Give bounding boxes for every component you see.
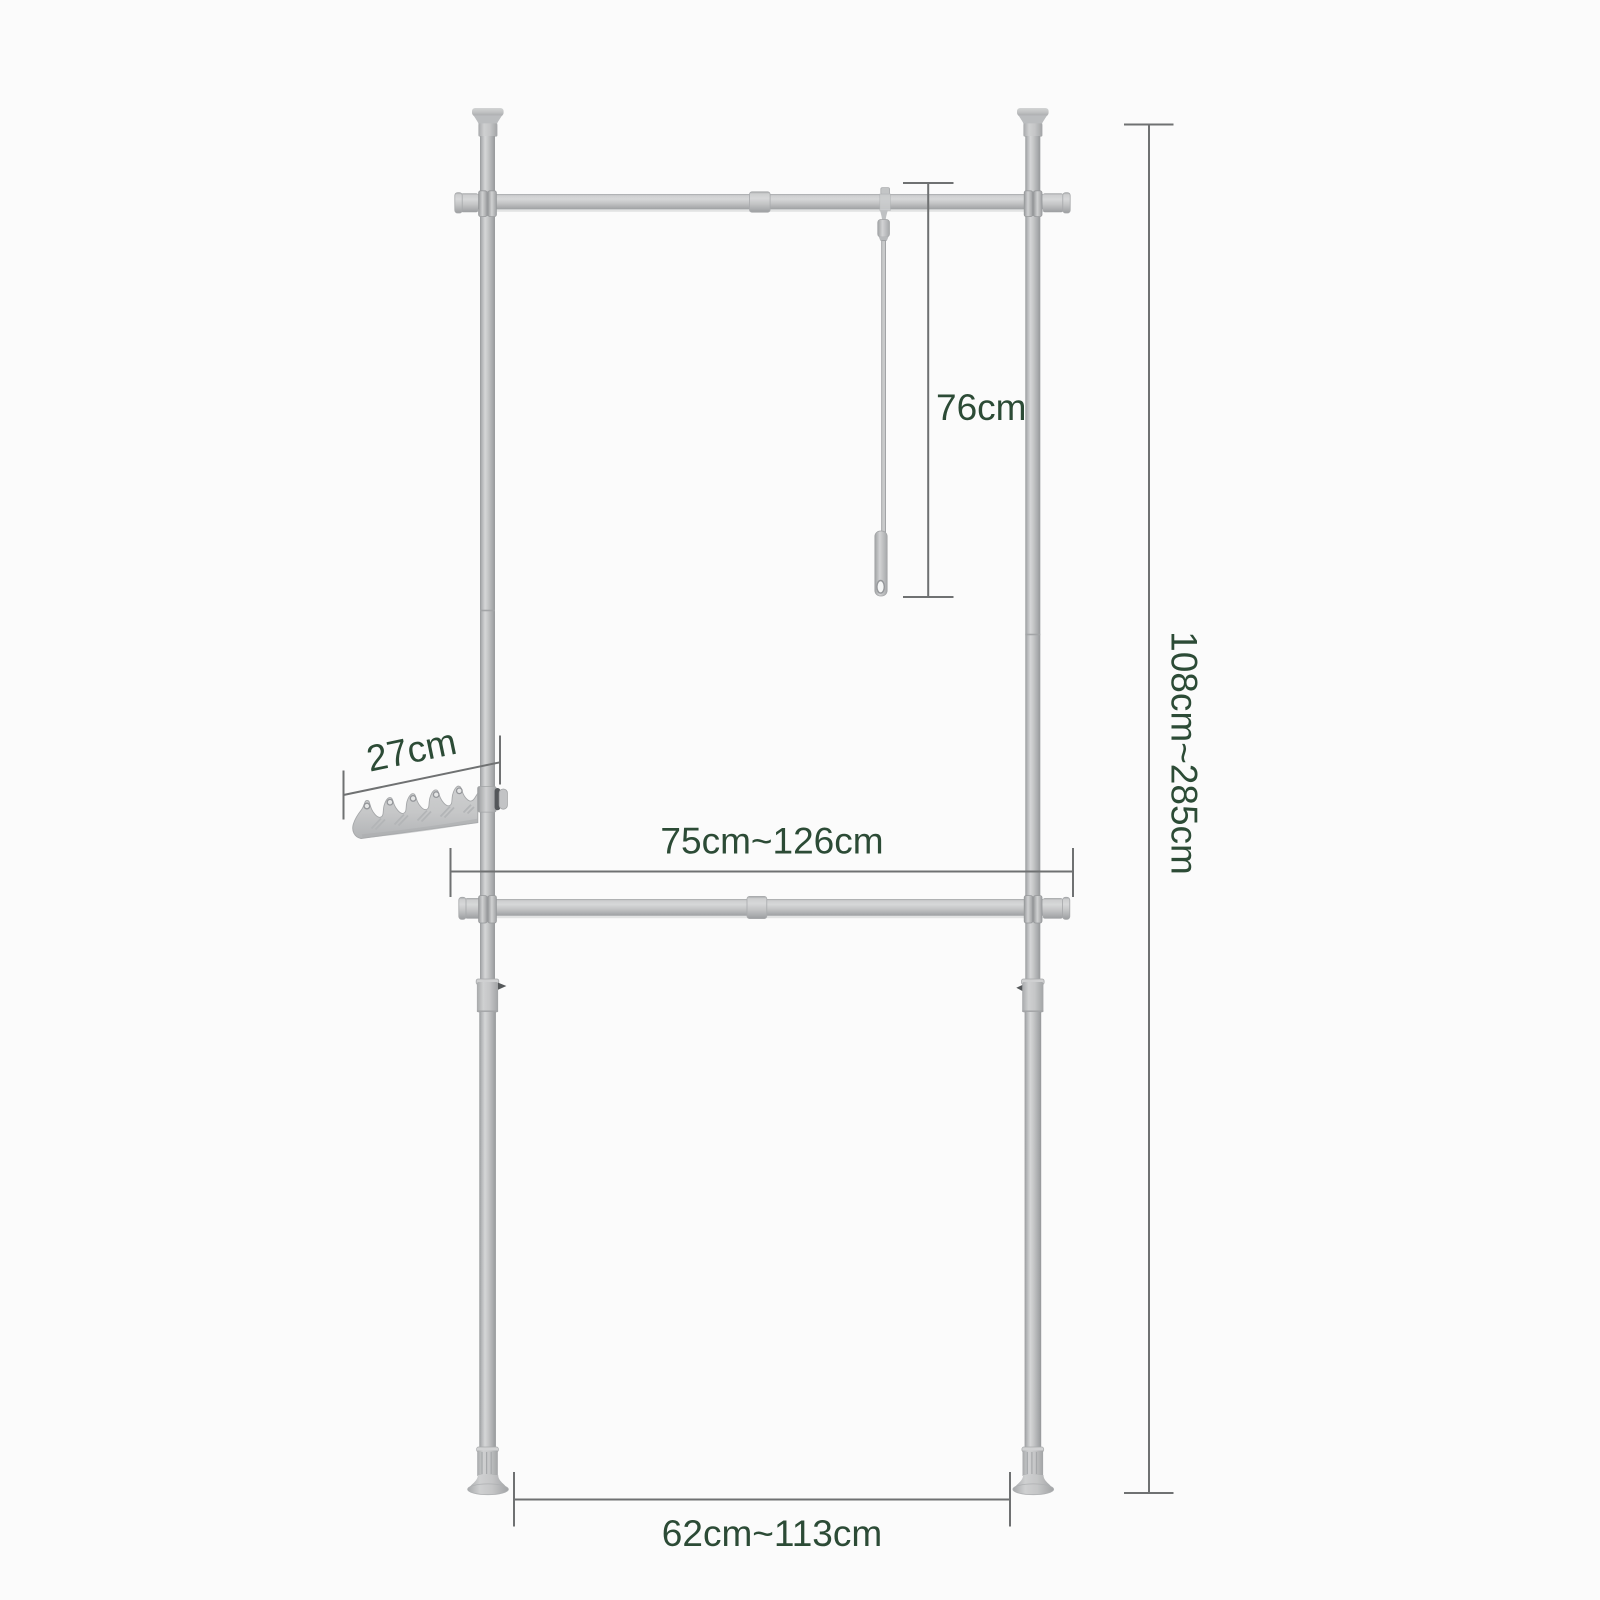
svg-text:27cm: 27cm <box>363 721 460 780</box>
svg-text:75cm~126cm: 75cm~126cm <box>660 821 883 862</box>
svg-text:76cm: 76cm <box>936 387 1026 428</box>
svg-text:62cm~113cm: 62cm~113cm <box>662 1513 882 1554</box>
svg-text:108cm~285cm: 108cm~285cm <box>1164 631 1205 875</box>
